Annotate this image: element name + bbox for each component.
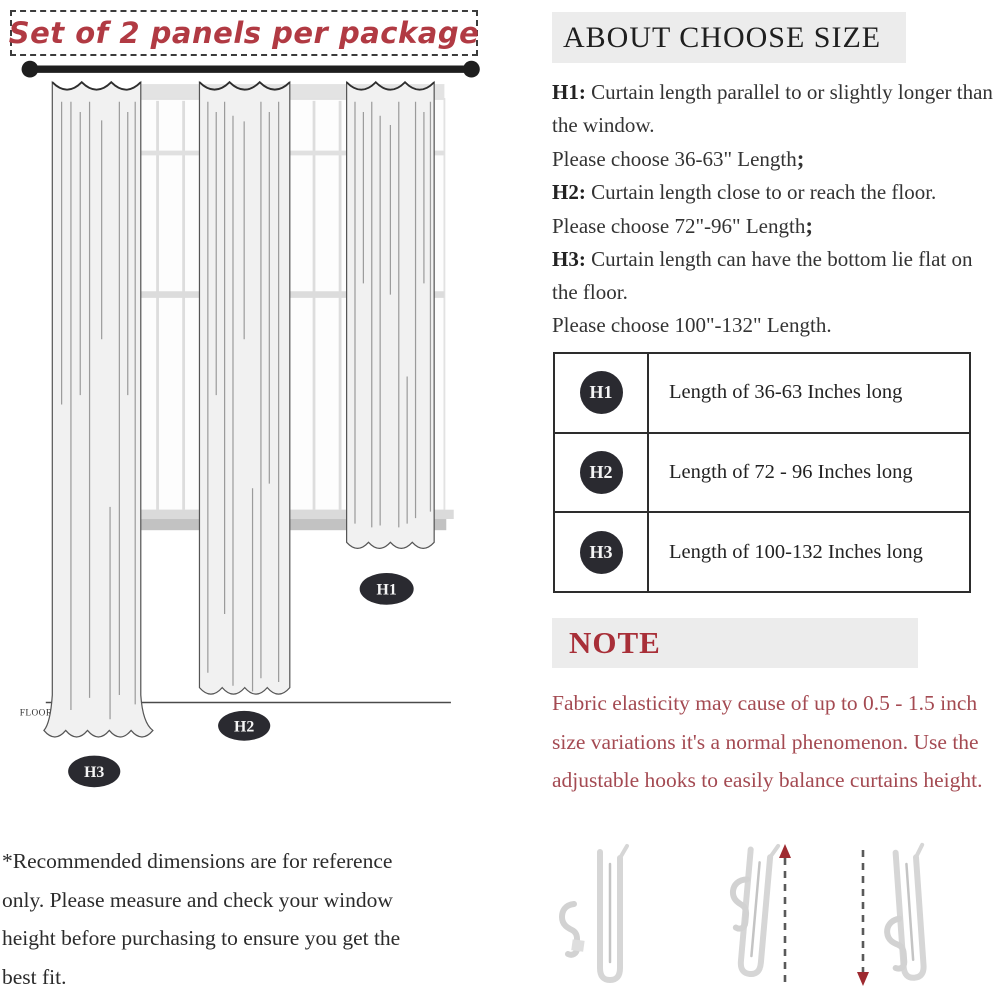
note-title: NOTE xyxy=(552,625,661,661)
rod-finial-right xyxy=(463,61,480,78)
curtain-panel-h1 xyxy=(347,82,435,548)
size-guide-choose-h1: Please choose 36-63" Length; xyxy=(552,142,1000,176)
package-banner-text: Set of 2 panels per package xyxy=(9,16,480,50)
curtain-panel-h3 xyxy=(44,82,153,737)
size-guide-choose-h2: Please choose 72"-96" Length; xyxy=(552,209,1000,243)
table-badge-h1: H1 xyxy=(580,371,623,414)
table-cell-length: Length of 100-132 Inches long xyxy=(649,513,969,591)
about-choose-size-heading: ABOUT CHOOSE SIZE xyxy=(552,12,906,63)
curtain-panel-h2 xyxy=(199,82,289,694)
curtain-hook-icon xyxy=(562,904,585,955)
svg-text:H3: H3 xyxy=(84,764,104,781)
table-row: H1 Length of 36-63 Inches long xyxy=(555,354,969,434)
note-body-text: Fabric elasticity may cause of up to 0.5… xyxy=(552,684,1000,800)
about-choose-size-title: ABOUT CHOOSE SIZE xyxy=(552,21,881,55)
curtain-rod xyxy=(22,61,480,78)
package-banner: Set of 2 panels per package xyxy=(10,10,478,56)
size-guide-item-h3: H3: Curtain length can have the bottom l… xyxy=(552,243,1000,309)
diagram-badge-h3: H3 xyxy=(68,756,120,788)
size-guide-item-h1: H1: Curtain length parallel to or slight… xyxy=(552,76,1000,142)
size-guide-text: H1: Curtain length parallel to or slight… xyxy=(552,76,1000,342)
floor-label: FLOOR xyxy=(20,709,53,719)
diagram-badge-h2: H2 xyxy=(218,711,270,741)
note-heading: NOTE xyxy=(552,618,918,668)
table-row: H2 Length of 72 - 96 Inches long xyxy=(555,434,969,514)
arrow-down-icon xyxy=(857,850,869,986)
table-badge-h2: H2 xyxy=(580,451,623,494)
pleat-hook-raised-icon xyxy=(726,842,778,975)
table-badge-h3: H3 xyxy=(580,531,623,574)
size-guide-choose-h3: Please choose 100"-132" Length. xyxy=(552,309,1000,342)
size-table: H1 Length of 36-63 Inches long H2 Length… xyxy=(553,352,971,593)
pleat-hook-lowered-icon xyxy=(881,845,931,980)
table-cell-length: Length of 72 - 96 Inches long xyxy=(649,434,969,512)
size-guide-item-h2: H2: Curtain length close to or reach the… xyxy=(552,176,1000,209)
svg-text:H2: H2 xyxy=(234,718,254,735)
rod-finial-left xyxy=(22,61,39,78)
adjustable-hooks-illustration xyxy=(548,840,993,998)
diagram-badge-h1: H1 xyxy=(360,573,414,605)
disclaimer-text: *Recommended dimensions are for referenc… xyxy=(2,842,434,996)
svg-text:H1: H1 xyxy=(377,581,397,598)
table-row: H3 Length of 100-132 Inches long xyxy=(555,513,969,591)
curtain-scene-illustration: FLOOR xyxy=(0,58,520,845)
table-cell-length: Length of 36-63 Inches long xyxy=(649,354,969,432)
arrow-up-icon xyxy=(779,844,791,982)
pleat-hook-icon xyxy=(600,846,627,980)
